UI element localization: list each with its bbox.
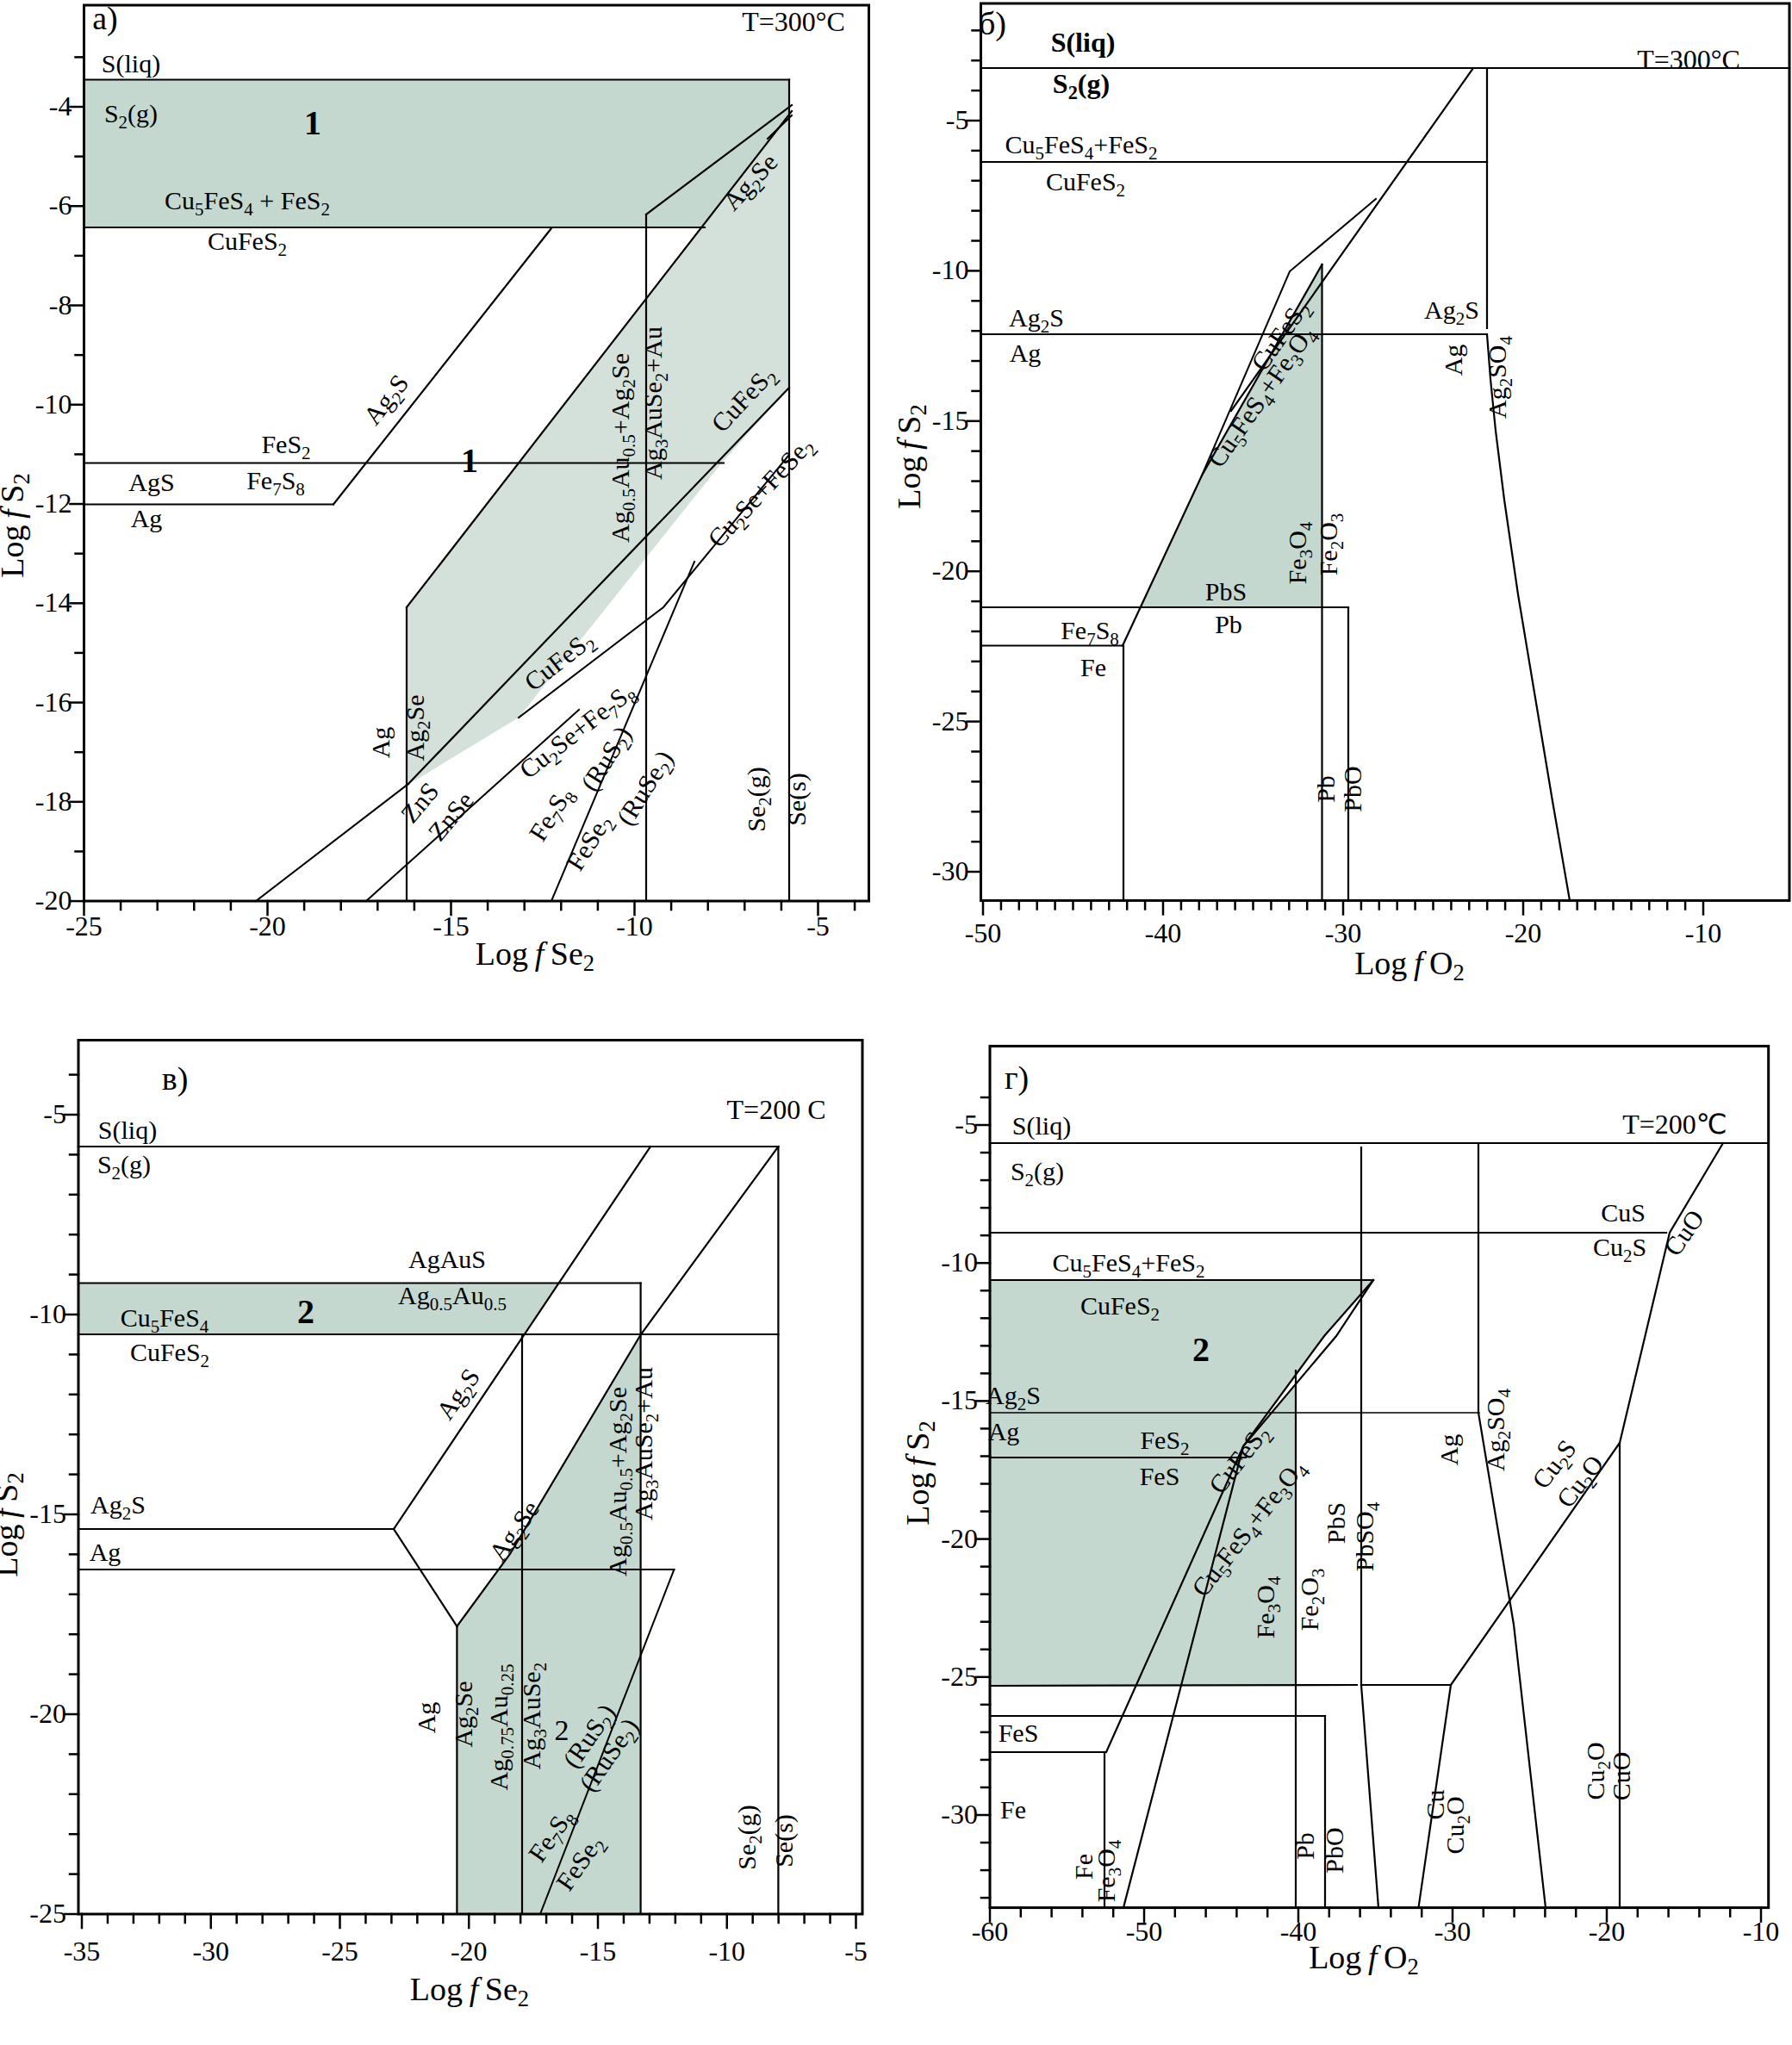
svg-text:в): в) xyxy=(162,1060,189,1097)
svg-text:-10: -10 xyxy=(941,1246,978,1277)
svg-text:-40: -40 xyxy=(1145,917,1182,948)
svg-text:S(liq): S(liq) xyxy=(102,49,160,78)
svg-text:-25: -25 xyxy=(29,1898,66,1929)
svg-text:Pb: Pb xyxy=(1311,775,1340,803)
svg-text:-15: -15 xyxy=(932,405,969,436)
svg-text:AgS: AgS xyxy=(128,468,174,496)
svg-text:Log f Se2​: Log f Se2​ xyxy=(410,1971,529,2011)
svg-text:Pb: Pb xyxy=(1215,610,1242,638)
svg-text:-20: -20 xyxy=(35,885,72,916)
svg-text:-15: -15 xyxy=(29,1498,66,1529)
svg-text:S(liq): S(liq) xyxy=(98,1116,157,1145)
svg-text:Se(s): Se(s) xyxy=(769,1814,799,1868)
svg-text:Log f Se2​: Log f Se2​ xyxy=(476,935,594,976)
svg-text:T=300°C: T=300°C xyxy=(1637,44,1740,75)
svg-text:-20: -20 xyxy=(1589,1916,1626,1947)
svg-text:-10: -10 xyxy=(1685,917,1722,948)
svg-text:Ag: Ag xyxy=(988,1417,1020,1445)
svg-text:-30: -30 xyxy=(932,855,969,886)
svg-text:PbO: PbO xyxy=(1338,766,1366,811)
svg-text:-10: -10 xyxy=(29,1298,66,1329)
svg-text:-35: -35 xyxy=(64,1936,101,1967)
svg-text:-30: -30 xyxy=(941,1799,978,1830)
svg-text:-12: -12 xyxy=(35,488,72,519)
svg-text:-5: -5 xyxy=(43,1098,66,1129)
svg-text:CuO: CuO xyxy=(1607,1752,1635,1801)
svg-text:-25: -25 xyxy=(941,1661,978,1692)
svg-text:T=200℃: T=200℃ xyxy=(1622,1109,1727,1140)
svg-text:1: 1 xyxy=(461,441,478,480)
svg-text:-15: -15 xyxy=(580,1936,617,1967)
svg-text:Log f S2​: Log f S2​ xyxy=(0,473,34,577)
svg-text:Ag: Ag xyxy=(412,1702,440,1734)
svg-text:-50: -50 xyxy=(1126,1916,1163,1947)
svg-text:-18: -18 xyxy=(35,786,72,817)
svg-text:Log f S2​: Log f S2​ xyxy=(891,404,931,508)
svg-text:-20: -20 xyxy=(29,1698,66,1729)
svg-text:-20: -20 xyxy=(249,911,286,942)
svg-text:Ag: Ag xyxy=(131,504,163,532)
svg-text:-25: -25 xyxy=(932,705,969,737)
svg-text:-15: -15 xyxy=(432,911,470,942)
svg-text:Ag: Ag xyxy=(90,1538,121,1566)
svg-text:-25: -25 xyxy=(321,1936,358,1967)
svg-text:S(liq): S(liq) xyxy=(1051,27,1116,58)
svg-text:-16: -16 xyxy=(35,687,72,718)
svg-text:Se(s): Se(s) xyxy=(782,773,812,826)
svg-text:-20: -20 xyxy=(1505,917,1542,948)
svg-text:Ag: Ag xyxy=(1010,339,1042,367)
svg-text:-10: -10 xyxy=(35,388,72,420)
svg-text:Log f S2​: Log f S2​ xyxy=(899,1420,940,1525)
svg-text:-4: -4 xyxy=(49,90,72,121)
svg-text:-50: -50 xyxy=(965,917,1002,948)
svg-text:Fe: Fe xyxy=(1000,1795,1026,1824)
svg-text:PbS: PbS xyxy=(1322,1502,1350,1544)
svg-text:Log f O2​: Log f O2​ xyxy=(1354,945,1465,985)
svg-text:-5: -5 xyxy=(955,1109,978,1140)
svg-text:T=300°C: T=300°C xyxy=(742,6,845,37)
svg-text:S(liq): S(liq) xyxy=(1012,1111,1071,1141)
svg-text:-8: -8 xyxy=(49,289,72,320)
svg-text:-5: -5 xyxy=(806,911,830,942)
svg-text:-10: -10 xyxy=(932,254,969,285)
svg-text:AgAuS: AgAuS xyxy=(408,1245,486,1273)
svg-text:2: 2 xyxy=(297,1292,314,1331)
svg-text:-5: -5 xyxy=(844,1936,868,1967)
svg-text:-30: -30 xyxy=(1434,1916,1472,1947)
svg-text:PbO: PbO xyxy=(1320,1827,1348,1873)
svg-text:Ag: Ag xyxy=(1439,345,1467,376)
svg-text:-5: -5 xyxy=(946,104,969,135)
svg-text:-10: -10 xyxy=(708,1936,745,1967)
svg-text:-20: -20 xyxy=(451,1936,488,1967)
svg-text:г): г) xyxy=(1005,1060,1029,1097)
svg-text:-30: -30 xyxy=(192,1936,229,1967)
svg-text:Fe: Fe xyxy=(1080,653,1106,681)
svg-text:-14: -14 xyxy=(35,587,72,618)
svg-text:1: 1 xyxy=(304,103,321,142)
svg-text:2: 2 xyxy=(1192,1330,1210,1369)
svg-text:PbS: PbS xyxy=(1205,577,1247,606)
svg-text:-60: -60 xyxy=(972,1916,1009,1947)
svg-text:T=200 C: T=200 C xyxy=(727,1094,826,1125)
svg-text:-6: -6 xyxy=(49,190,72,221)
svg-text:a): a) xyxy=(92,0,118,37)
svg-text:FeS: FeS xyxy=(1140,1462,1180,1490)
svg-text:S2​(g): S2​(g) xyxy=(1053,68,1110,103)
svg-text:Pb: Pb xyxy=(1291,1832,1319,1860)
svg-text:Ag: Ag xyxy=(366,727,395,759)
svg-text:Ag: Ag xyxy=(1434,1434,1463,1466)
svg-text:-10: -10 xyxy=(616,911,653,942)
svg-text:-15: -15 xyxy=(941,1384,978,1415)
svg-text:-20: -20 xyxy=(932,555,969,586)
svg-text:FeS: FeS xyxy=(999,1719,1039,1747)
svg-text:б): б) xyxy=(979,5,1006,42)
svg-text:Log f O2​: Log f O2​ xyxy=(1309,1939,1419,1980)
svg-text:-20: -20 xyxy=(941,1523,978,1554)
svg-text:-10: -10 xyxy=(1743,1916,1780,1947)
svg-text:-30: -30 xyxy=(1325,917,1362,948)
svg-text:CuS: CuS xyxy=(1601,1198,1646,1227)
